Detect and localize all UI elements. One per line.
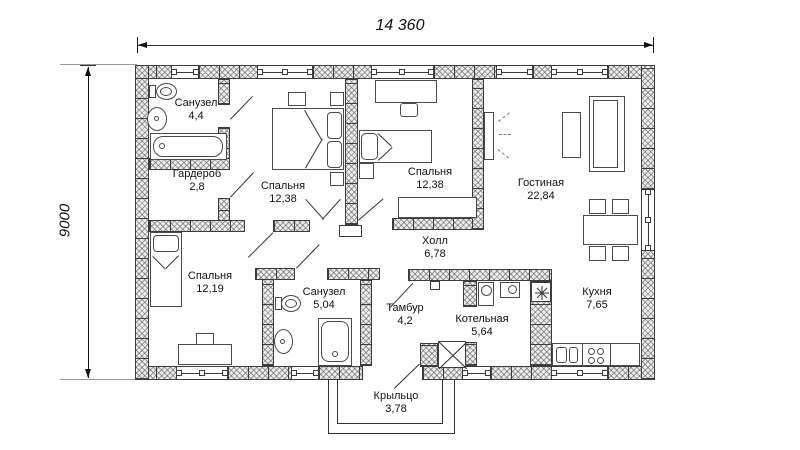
wall-segment xyxy=(255,268,295,280)
monitor xyxy=(196,333,214,345)
window xyxy=(258,65,312,79)
room-label-sanuzel-1: Санузел4,4 xyxy=(156,97,236,123)
tv-icon xyxy=(484,112,494,160)
room-label-spalnya-3: Спальня12,19 xyxy=(170,270,250,296)
pillow xyxy=(327,141,342,168)
room-label-holl: Холл6,78 xyxy=(395,235,475,261)
dresser xyxy=(288,92,306,106)
desk xyxy=(375,80,437,103)
stove-burner-icon xyxy=(597,357,604,364)
room-label-kuhnya: Кухня7,65 xyxy=(557,286,637,312)
arrow-up-icon xyxy=(85,67,91,76)
extension-line xyxy=(60,64,137,65)
door-swing-line xyxy=(296,244,320,268)
wall-segment xyxy=(312,65,372,79)
pillow xyxy=(153,235,179,252)
wall-segment xyxy=(392,218,484,230)
wall-segment xyxy=(262,268,274,366)
wall-segment xyxy=(532,65,552,79)
water-heater-icon xyxy=(508,285,517,294)
dimension-height-label: 9000 xyxy=(57,186,74,256)
room-label-kotelnaya: Котельная5,64 xyxy=(437,313,527,339)
room-label-gostinaya: Гостиная22,84 xyxy=(499,177,583,203)
tv-ray xyxy=(498,112,510,121)
sofa-seat xyxy=(593,100,618,168)
wall-segment xyxy=(327,268,380,280)
bathtub-drain xyxy=(159,143,165,149)
chair xyxy=(589,199,606,214)
kitchen-sink-icon xyxy=(556,347,567,363)
stove-burner-icon xyxy=(597,348,604,355)
sink-drain xyxy=(280,339,285,344)
door-swing-line xyxy=(358,198,384,220)
door-swing-line xyxy=(322,199,341,220)
wall-segment xyxy=(149,220,245,232)
wall-segment xyxy=(490,366,552,380)
wall-segment xyxy=(198,65,258,79)
extension-line xyxy=(60,379,137,380)
boiler-icon xyxy=(481,285,492,296)
door-jamb xyxy=(430,281,440,290)
tv-ray xyxy=(497,149,509,158)
window xyxy=(172,65,198,79)
nightstand xyxy=(330,92,344,106)
wall-segment xyxy=(135,65,149,380)
vent-shaft-icon xyxy=(438,341,466,368)
stove-burner-icon xyxy=(588,357,595,364)
window xyxy=(463,366,490,380)
window xyxy=(372,65,433,79)
toilet-icon xyxy=(149,85,156,98)
tv-ray xyxy=(499,134,511,135)
chair xyxy=(612,199,629,214)
wall-pier xyxy=(339,225,362,237)
pillow xyxy=(361,133,378,160)
window xyxy=(641,190,655,250)
floor-plan: 14 360 9000 xyxy=(0,0,800,450)
window xyxy=(497,65,532,79)
chair xyxy=(400,103,418,117)
door-swing-line xyxy=(248,232,273,257)
dimension-line-top xyxy=(138,45,653,46)
room-label-tambur: Тамбур4,2 xyxy=(365,302,445,328)
dimension-tick xyxy=(137,37,138,53)
wall-segment xyxy=(463,281,477,307)
room-label-spalnya-1: Спальня12,38 xyxy=(243,180,323,206)
arrow-down-icon xyxy=(85,369,91,378)
chair xyxy=(612,246,629,261)
room-label-sanuzel-2: Санузел5,04 xyxy=(284,286,364,312)
nightstand xyxy=(330,172,344,186)
wall-segment xyxy=(318,366,363,380)
toilet-icon xyxy=(160,87,172,96)
wall-segment xyxy=(420,343,438,367)
dining-table xyxy=(583,215,638,245)
counter-divider xyxy=(582,343,583,366)
nightstand xyxy=(359,163,374,179)
dimension-line-left xyxy=(88,67,89,378)
coffee-table xyxy=(562,112,581,158)
pillow xyxy=(327,112,342,139)
desk xyxy=(178,344,232,365)
wall-segment xyxy=(345,79,358,225)
arrow-right-icon xyxy=(644,42,653,48)
wall-segment xyxy=(641,250,655,380)
kitchen-sink-icon xyxy=(569,347,578,363)
wall-segment xyxy=(408,269,552,281)
stove-burner-icon xyxy=(588,348,595,355)
dimension-tick xyxy=(80,65,96,66)
window xyxy=(292,366,318,380)
dimension-width-label: 14 360 xyxy=(350,17,450,35)
room-label-garderob: Гардероб2,8 xyxy=(157,168,237,194)
wall-segment xyxy=(273,220,310,232)
window xyxy=(552,65,607,79)
room-label-spalnya-2: Спальня12,38 xyxy=(390,166,470,192)
wall-segment xyxy=(433,65,497,79)
wall-segment xyxy=(227,366,292,380)
flue-icon xyxy=(531,282,551,302)
arrow-left-icon xyxy=(138,42,147,48)
counter-divider xyxy=(610,343,611,366)
dimension-tick xyxy=(653,37,654,53)
wall-segment xyxy=(641,65,655,190)
room-label-krylco: Крыльцо3,78 xyxy=(351,390,441,416)
wardrobe-cabinet xyxy=(398,197,477,218)
window xyxy=(552,366,607,380)
bathtub-drain xyxy=(332,351,338,357)
window xyxy=(177,366,227,380)
chair xyxy=(589,246,606,261)
